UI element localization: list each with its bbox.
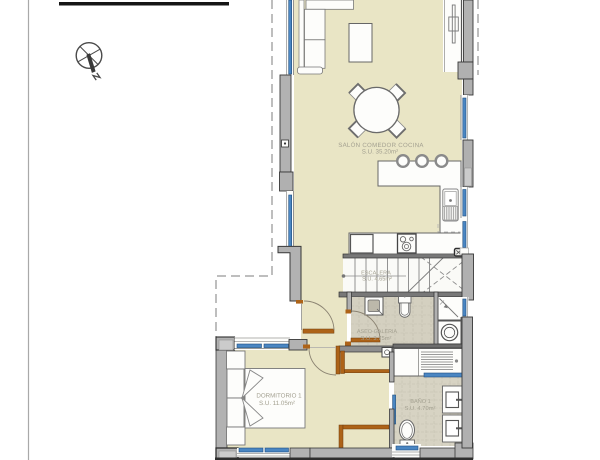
svg-text:S.U. 35.20m²: S.U. 35.20m²	[362, 148, 398, 155]
svg-text:S.U. 4.70m²: S.U. 4.70m²	[405, 406, 436, 412]
svg-text:S.U. 3.75m²: S.U. 3.75m²	[361, 336, 392, 342]
svg-text:S.U. 4.65m²: S.U. 4.65m²	[362, 276, 392, 282]
svg-text:S.U. 11.05m²: S.U. 11.05m²	[259, 400, 295, 407]
svg-text:DORMITORIO 1: DORMITORIO 1	[256, 392, 302, 399]
svg-text:BAÑO 1: BAÑO 1	[410, 398, 431, 405]
svg-text:ASEO-GALERIA: ASEO-GALERIA	[357, 329, 398, 335]
